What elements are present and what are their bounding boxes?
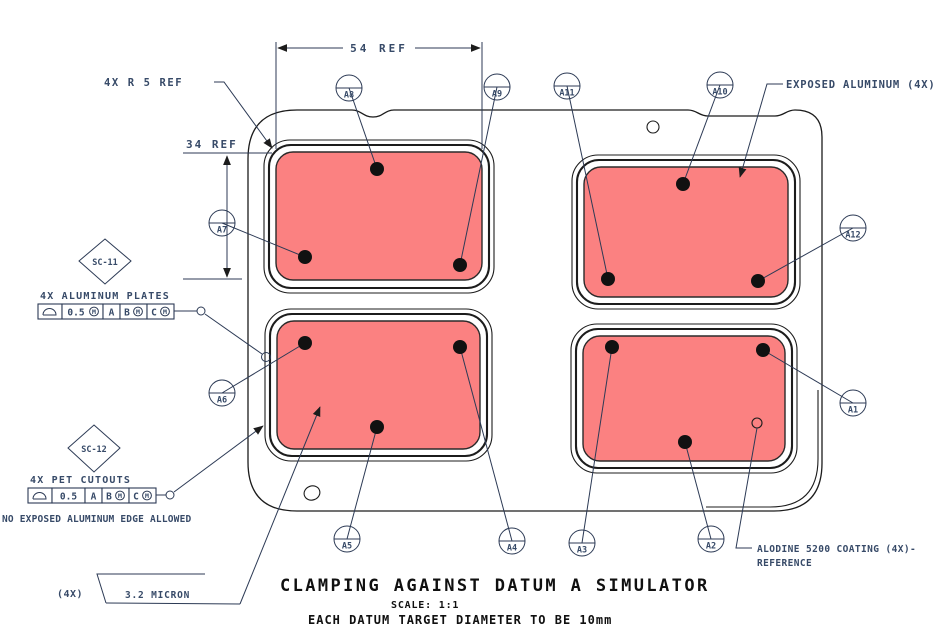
fcf-pet-leader xyxy=(156,426,263,499)
svg-text:M: M xyxy=(118,492,122,500)
fcf-frame-0: 0.5MABMCM xyxy=(38,304,174,319)
alodine-label-line1: ALODINE 5200 COATING (4X)- xyxy=(757,544,916,555)
svg-text:A: A xyxy=(91,492,97,503)
datum-dot-a6 xyxy=(298,336,312,350)
datum-balloon-label-a9: A9 xyxy=(492,90,502,100)
dim-54-label: 54 REF xyxy=(350,42,408,55)
datum-dot-a9 xyxy=(453,258,467,272)
datum-dot-a11 xyxy=(601,272,615,286)
sc12-label: SC-12 xyxy=(81,445,107,455)
drawing-note: EACH DATUM TARGET DIAMETER TO BE 10mm xyxy=(308,613,612,627)
feature-control-frames: 0.5MABMCM0.5ABMCM xyxy=(28,304,174,503)
fcf-plates-label: 4X ALUMINUM PLATES xyxy=(40,291,170,302)
drawing-sheet: 54 REF 34 REF 4X R 5 REF EXPOSED ALUMINU… xyxy=(0,0,951,635)
datum-balloon-label-a2: A2 xyxy=(706,542,716,552)
datum-balloon-label-a5: A5 xyxy=(342,542,352,552)
datum-dot-a8 xyxy=(370,162,384,176)
svg-text:B: B xyxy=(106,492,112,503)
tag-sc12: SC-12 xyxy=(68,425,120,472)
datum-dot-a1 xyxy=(756,343,770,357)
alodine-label-line2: REFERENCE xyxy=(757,558,812,569)
exposed-aluminum-label: EXPOSED ALUMINUM (4X) xyxy=(786,79,936,91)
body-hole-bottom xyxy=(302,484,322,503)
sc11-label: SC-11 xyxy=(92,258,118,268)
datum-dot-a5 xyxy=(370,420,384,434)
corner-radius-label: 4X R 5 REF xyxy=(104,77,183,89)
dim-34-label: 34 REF xyxy=(186,138,238,151)
fcf-pet-label: 4X PET CUTOUTS xyxy=(30,475,131,486)
tag-sc11: SC-11 xyxy=(79,239,131,284)
body-hole-top xyxy=(647,121,659,133)
drawing-title: CLAMPING AGAINST DATUM A SIMULATOR xyxy=(280,576,710,596)
drawing-scale: SCALE: 1:1 xyxy=(391,600,459,611)
datum-balloon-label-a7: A7 xyxy=(217,226,227,236)
datum-dot-a4 xyxy=(453,340,467,354)
dimension-34-ref: 34 REF xyxy=(183,138,272,279)
svg-text:A: A xyxy=(109,308,115,319)
svg-text:M: M xyxy=(145,492,149,500)
datum-dot-a12 xyxy=(751,274,765,288)
datum-balloon-label-a10: A10 xyxy=(712,88,727,98)
datum-balloon-label-a8: A8 xyxy=(344,91,354,101)
surface-finish-qty: (4X) xyxy=(57,589,83,600)
datum-dot-a2 xyxy=(678,435,692,449)
datum-balloon-label-a12: A12 xyxy=(845,231,860,241)
no-exposed-edge-note: NO EXPOSED ALUMINUM EDGE ALLOWED xyxy=(2,514,192,525)
fcf-plates-leader xyxy=(174,307,271,362)
svg-text:0.5: 0.5 xyxy=(67,308,84,319)
fcf-frame-1: 0.5ABMCM xyxy=(28,488,156,503)
callout-exposed-aluminum: EXPOSED ALUMINUM (4X) xyxy=(740,79,936,177)
dimension-54-ref: 54 REF xyxy=(276,42,482,149)
svg-text:M: M xyxy=(163,308,167,316)
svg-text:B: B xyxy=(124,308,130,319)
datum-dot-a3 xyxy=(605,340,619,354)
svg-text:C: C xyxy=(151,308,157,319)
datum-dot-a10 xyxy=(676,177,690,191)
svg-text:C: C xyxy=(133,492,139,503)
engineering-drawing: 54 REF 34 REF 4X R 5 REF EXPOSED ALUMINU… xyxy=(0,0,951,635)
datum-balloon-label-a1: A1 xyxy=(848,406,858,416)
surface-finish-value: 3.2 MICRON xyxy=(125,590,190,601)
plate-bottom-left xyxy=(265,309,492,461)
datum-dot-a7 xyxy=(298,250,312,264)
datum-balloon-label-a11: A11 xyxy=(559,89,574,99)
datum-balloon-label-a3: A3 xyxy=(577,546,587,556)
svg-text:M: M xyxy=(92,308,96,316)
title-block: CLAMPING AGAINST DATUM A SIMULATOR SCALE… xyxy=(280,576,710,627)
svg-text:0.5: 0.5 xyxy=(60,492,77,503)
datum-balloon-label-a4: A4 xyxy=(507,544,517,554)
datum-balloon-label-a6: A6 xyxy=(217,396,227,406)
svg-text:M: M xyxy=(136,308,140,316)
